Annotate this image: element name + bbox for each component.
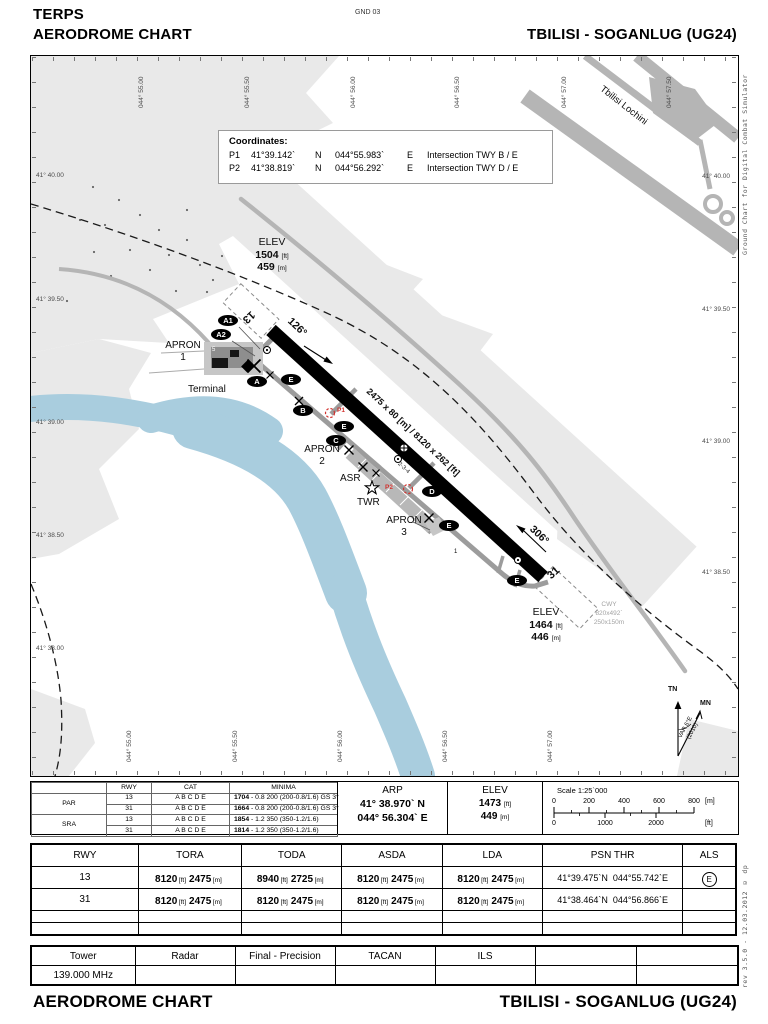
taxiway-oval-b: B xyxy=(293,405,313,416)
asr-label: ASR xyxy=(340,473,361,485)
taxiway-oval-c: C xyxy=(326,435,346,446)
frequency-table: TowerRadar Final - PrecisionTACAN ILS 13… xyxy=(30,945,739,986)
arp-box: ARP 41° 38.970` N 044° 56.304` E xyxy=(337,782,447,834)
als-code-circle: E xyxy=(702,872,717,887)
airport-title: TBILISI - SOGANLUG (UG24) xyxy=(527,26,737,43)
aerodrome-chart-page: TERPS AERODROME CHART GND 03 TBILISI - S… xyxy=(0,0,768,1024)
frequency-table-row: 139.000 MHz xyxy=(31,966,738,986)
taxiway-oval-a2: A2 xyxy=(211,329,231,340)
taxiway-oval-a: A xyxy=(247,376,267,387)
arp-title: ARP xyxy=(338,785,447,796)
apron2-label: APRON2 xyxy=(297,444,347,468)
lon-label-top: 044° 57.00 xyxy=(561,58,570,108)
lat-label-right: 41° 39.50 xyxy=(688,306,730,313)
chart-title: AERODROME CHART xyxy=(33,26,192,43)
right-edge-ticks xyxy=(732,57,736,774)
scale-box: Scale 1:25`000 0 200 400 600 800 [m] 0 1… xyxy=(542,782,738,834)
lon-label-top: 044° 55.00 xyxy=(138,58,147,108)
doc-code: TERPS xyxy=(33,6,84,23)
runway-table-row-13: 13 8120[ft]2475[m] 8940[ft]2725[m] 8120[… xyxy=(31,867,736,889)
runway-table-empty-row xyxy=(31,911,736,923)
taxiway-oval-e: E xyxy=(507,575,527,586)
coordinates-box: Coordinates: P141°39.142`N044°55.983`EIn… xyxy=(218,130,553,184)
tower-frequency: 139.000 MHz xyxy=(31,966,135,986)
apron3-label: APRON3 xyxy=(379,515,429,539)
minima-col-rwy: RWY xyxy=(107,783,152,794)
frequency-table-header: TowerRadar Final - PrecisionTACAN ILS xyxy=(31,946,738,966)
minima-row: PAR 13 A B C D E 1704 - 0.8 200 (200-0.8… xyxy=(32,793,338,804)
minima-col-cat: CAT xyxy=(152,783,230,794)
lat-label-right: 41° 38.50 xyxy=(688,569,730,576)
elev-label-rwy13: ELEV 1504 [ft] 459 [m] xyxy=(237,236,307,274)
arp-lon: 044° 56.304` E xyxy=(338,812,447,824)
lat-label-left: 41° 38.50 xyxy=(36,532,64,539)
elev-box: ELEV 1473 [ft] 449 [m] xyxy=(447,782,542,834)
side-note-bottom: rev 3.5.0 - 12.03.2012 © dp xyxy=(741,828,749,988)
footer-chart-title: AERODROME CHART xyxy=(33,992,213,1012)
elev-label-rwy31: ELEV 1464 [ft] 446 [m] xyxy=(511,606,581,644)
coordinates-title: Coordinates: xyxy=(229,136,552,147)
lon-label-top: 044° 55.50 xyxy=(244,58,253,108)
coordinates-row-p1: P141°39.142`N044°55.983`EIntersection TW… xyxy=(229,150,552,160)
arp-lat: 41° 38.970` N xyxy=(338,798,447,810)
true-north-label: TN xyxy=(668,686,677,694)
runway-table-empty-row xyxy=(31,923,736,936)
footer-airport-title: TBILISI - SOGANLUG (UG24) xyxy=(500,992,737,1012)
taxiway-oval-e: E xyxy=(281,374,301,385)
lat-label-right: 41° 40.00 xyxy=(688,173,730,180)
twr-label: TWR xyxy=(357,497,380,509)
taxiway-oval-e: E xyxy=(439,520,459,531)
minima-col-minima: MINIMA xyxy=(230,783,338,794)
minima-table: RWY CAT MINIMA PAR 13 A B C D E 1704 - 0… xyxy=(31,782,338,837)
lon-label-bottom: 044° 55.50 xyxy=(232,712,241,762)
lon-label-bottom: 044° 56.50 xyxy=(442,712,451,762)
side-note-top: Ground Chart for Digital Combat Simulato… xyxy=(741,50,749,255)
lat-label-left: 41° 38.00 xyxy=(36,645,64,652)
lat-label-left: 41° 39.50 xyxy=(36,296,64,303)
p1-marker-label: P1 xyxy=(337,407,345,414)
coordinates-row-p2: P241°38.819`N044°56.292`EIntersection TW… xyxy=(229,163,552,173)
left-edge-ticks xyxy=(32,57,36,774)
lon-label-top: 044° 57.50 xyxy=(666,58,675,108)
stand-5-label: 5 xyxy=(212,347,215,354)
elev-title: ELEV xyxy=(448,785,542,796)
lat-label-right: 41° 39.00 xyxy=(688,438,730,445)
stand-1-label: 1 xyxy=(454,549,457,556)
runway-data-table: RWYTORA TODAASDA LDAPSN THR ALS 13 8120[… xyxy=(30,843,737,936)
lon-label-bottom: 044° 57.00 xyxy=(547,712,556,762)
p2-marker-label: P2 xyxy=(385,484,393,491)
lat-label-left: 41° 39.00 xyxy=(36,419,64,426)
sheet-code: GND 03 xyxy=(355,9,380,16)
taxiway-oval-e: E xyxy=(334,421,354,432)
minima-row: SRA 13 A B C D E 1854 - 1.2 350 (350-1.2… xyxy=(32,815,338,826)
runway-table-header: RWYTORA TODAASDA LDAPSN THR ALS xyxy=(31,844,736,867)
apron1-label: APRON1 xyxy=(158,340,208,364)
lon-label-bottom: 044° 55.00 xyxy=(126,712,135,762)
lon-label-top: 044° 56.50 xyxy=(454,58,463,108)
lon-label-bottom: 044° 56.00 xyxy=(337,712,346,762)
lon-label-top: 044° 56.00 xyxy=(350,58,359,108)
terminal-label: Terminal xyxy=(188,384,226,396)
taxiway-oval-a1: A1 xyxy=(218,315,238,326)
taxiway-oval-d: D xyxy=(422,486,442,497)
runway-table-row-31: 31 8120[ft]2475[m] 8120[ft]2475[m] 8120[… xyxy=(31,889,736,911)
clearway-label: CWY820x492`250x150m xyxy=(583,601,635,627)
info-band: RWY CAT MINIMA PAR 13 A B C D E 1704 - 0… xyxy=(30,781,739,835)
lat-label-left: 41° 40.00 xyxy=(36,172,64,179)
magnetic-north-label: MN xyxy=(700,700,711,708)
bottom-edge-ticks xyxy=(32,771,736,775)
